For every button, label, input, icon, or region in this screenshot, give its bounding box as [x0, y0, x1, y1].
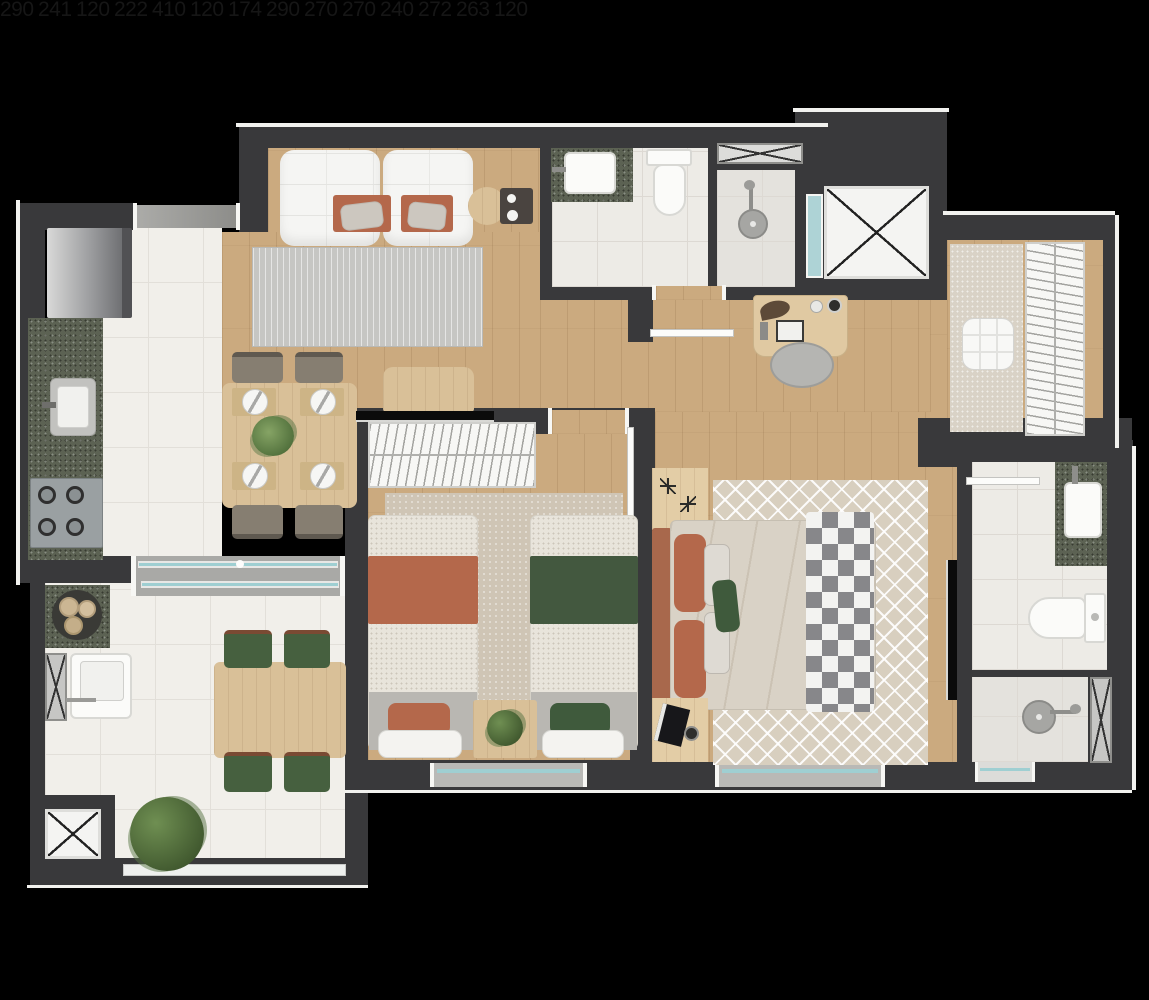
cooktop-burner	[38, 486, 56, 504]
wall-closet-top	[940, 215, 1115, 240]
balcony-shaft-icon	[45, 809, 101, 859]
kitchen-faucet-icon	[42, 402, 56, 408]
dimension-label-bathroom1-width: 120	[76, 0, 110, 21]
balcony-chair	[224, 752, 272, 792]
bathroom1-sink	[564, 152, 616, 194]
desk-notepad-icon	[776, 320, 804, 342]
desk-cup-icon	[810, 300, 823, 313]
bathroom2-sink	[1064, 482, 1102, 538]
decor-twig-icon	[660, 478, 676, 494]
dining-chair	[232, 505, 283, 539]
master-pillow-terracotta	[674, 620, 706, 698]
refrigerator	[47, 228, 132, 318]
balcony-plant	[130, 797, 204, 871]
toilet1-bowl	[653, 164, 686, 216]
bathroom1-door-jamb-right	[722, 285, 726, 300]
bedroom2-door-jamb-left	[548, 408, 552, 434]
trim	[236, 123, 828, 127]
dimension-label-closet-width: 120	[190, 0, 224, 21]
floor-plan: 290 241 120 222 410 120 174 290 270 270 …	[0, 0, 1149, 1000]
balcony-chair	[224, 630, 272, 668]
trim	[1132, 446, 1136, 790]
toilet2-bowl	[1028, 597, 1086, 639]
shower2-head-icon	[1022, 700, 1056, 734]
bedroom2-window-glass	[437, 769, 580, 773]
closet-pouf	[962, 318, 1014, 370]
bathroom1-door-leaf	[650, 329, 734, 337]
dimension-label-hallway: 410	[152, 0, 186, 21]
plate-icon	[242, 463, 268, 489]
nightstand-cup-icon	[684, 726, 699, 741]
desk-mug-icon	[827, 298, 842, 313]
sofa-pillow-right	[407, 201, 448, 231]
plate-icon	[310, 389, 336, 415]
master-headboard	[652, 528, 672, 706]
towel-roll-1	[59, 597, 79, 617]
tray-candle-icon	[507, 194, 516, 203]
master-window	[715, 763, 885, 787]
hallway-floor	[540, 300, 958, 412]
tv-master	[946, 560, 957, 700]
dining-chair	[232, 352, 283, 383]
closet-wardrobe	[1025, 242, 1085, 436]
shower1-valve	[744, 180, 755, 190]
bathroom2-window	[975, 762, 1035, 782]
dimension-label-master-width: 272	[418, 0, 452, 21]
bed-left-blanket	[368, 556, 478, 624]
tray-candle-icon	[507, 210, 518, 221]
desk-chair	[770, 342, 834, 388]
balcony-chair	[284, 752, 330, 792]
tv-console	[383, 367, 474, 412]
entry-landing	[137, 205, 239, 228]
master-window-glass	[722, 769, 878, 773]
cooktop-burner	[66, 518, 84, 536]
wall-living-left	[239, 127, 268, 232]
trim	[943, 211, 1115, 215]
dimension-label-bedroom2-width: 240	[380, 0, 414, 21]
trim	[16, 200, 20, 585]
tv-living	[356, 411, 494, 422]
nightstand-plant	[487, 710, 523, 746]
dimension-label-bedroom2-depth: 290	[266, 0, 300, 21]
laundry-faucet-icon	[66, 698, 96, 702]
dimension-label-bathroom2-length: 263	[456, 0, 490, 21]
dimension-label-kitchen: 290	[0, 0, 34, 21]
sliding-door-handle-icon	[236, 560, 244, 568]
towel-roll-3	[64, 616, 83, 635]
wall-living-top	[239, 127, 540, 148]
entry-jamb-right	[236, 203, 240, 230]
service-duct-icon	[45, 653, 67, 721]
desk-pen-icon	[760, 322, 768, 340]
cooktop-burner	[38, 518, 56, 536]
bathroom2-door-leaf	[966, 477, 1040, 485]
trim	[27, 885, 368, 888]
closet-approach-floor	[930, 300, 947, 418]
bedroom2-door-opening	[552, 410, 627, 434]
dining-chair	[295, 505, 343, 539]
entry-jamb-left	[133, 203, 137, 230]
wall-closet-right	[1103, 215, 1115, 448]
dimension-label-kitchen-length: 270	[304, 0, 338, 21]
laundry-tub-basin	[80, 661, 124, 701]
plate-icon	[310, 463, 336, 489]
dimension-label-bathroom2-width: 120	[494, 0, 528, 21]
trim	[1115, 215, 1119, 448]
bedroom2-wardrobe	[368, 422, 536, 488]
toilet2-button	[1091, 613, 1099, 621]
bathroom1-door-opening	[656, 286, 722, 300]
dimension-label-balcony: 270	[342, 0, 376, 21]
wall-kitchen-balcony	[20, 556, 143, 583]
bathroom1-door-jamb-left	[652, 285, 656, 300]
sliding-door-glass-2	[142, 583, 338, 586]
decor-twig-icon	[680, 496, 696, 512]
living-rug	[252, 247, 483, 347]
trim	[793, 108, 949, 112]
kitchen-sink-basin	[57, 386, 89, 428]
elevator-shaft-icon	[824, 186, 929, 279]
bathroom2-faucet-icon	[1072, 466, 1078, 484]
towel-roll-2	[78, 600, 96, 618]
balcony-table	[214, 662, 346, 758]
dimension-label-living: 241	[38, 0, 72, 21]
master-door-leaf	[627, 427, 634, 519]
plate-icon	[242, 389, 268, 415]
duct-shaft-icon	[717, 143, 803, 164]
bathroom1-faucet-icon	[552, 167, 566, 172]
sofa-pillow-left	[340, 201, 385, 232]
master-pillow-terracotta	[674, 534, 706, 612]
bed-left-pillow	[378, 730, 462, 758]
shaft-window	[806, 194, 823, 278]
cooktop-burner	[66, 486, 84, 504]
shower2-valve	[1070, 704, 1081, 714]
bedroom2-window	[430, 763, 587, 787]
trim	[345, 790, 1132, 793]
shower1-head-icon	[738, 209, 768, 239]
dining-chair	[295, 352, 343, 383]
bathroom2-duct-icon	[1090, 677, 1112, 763]
bed-right-pillow	[542, 730, 624, 758]
bathroom2-window-glass	[980, 768, 1030, 771]
dimension-label-bathroom1-length: 222	[114, 0, 148, 21]
bed-right-blanket	[530, 556, 638, 624]
balcony-chair	[284, 630, 330, 668]
master-bed-throw	[806, 512, 874, 712]
table-centerpiece-plant	[252, 416, 294, 456]
dimension-label-closet-length: 174	[228, 0, 262, 21]
wall-balcony-right	[345, 762, 368, 862]
